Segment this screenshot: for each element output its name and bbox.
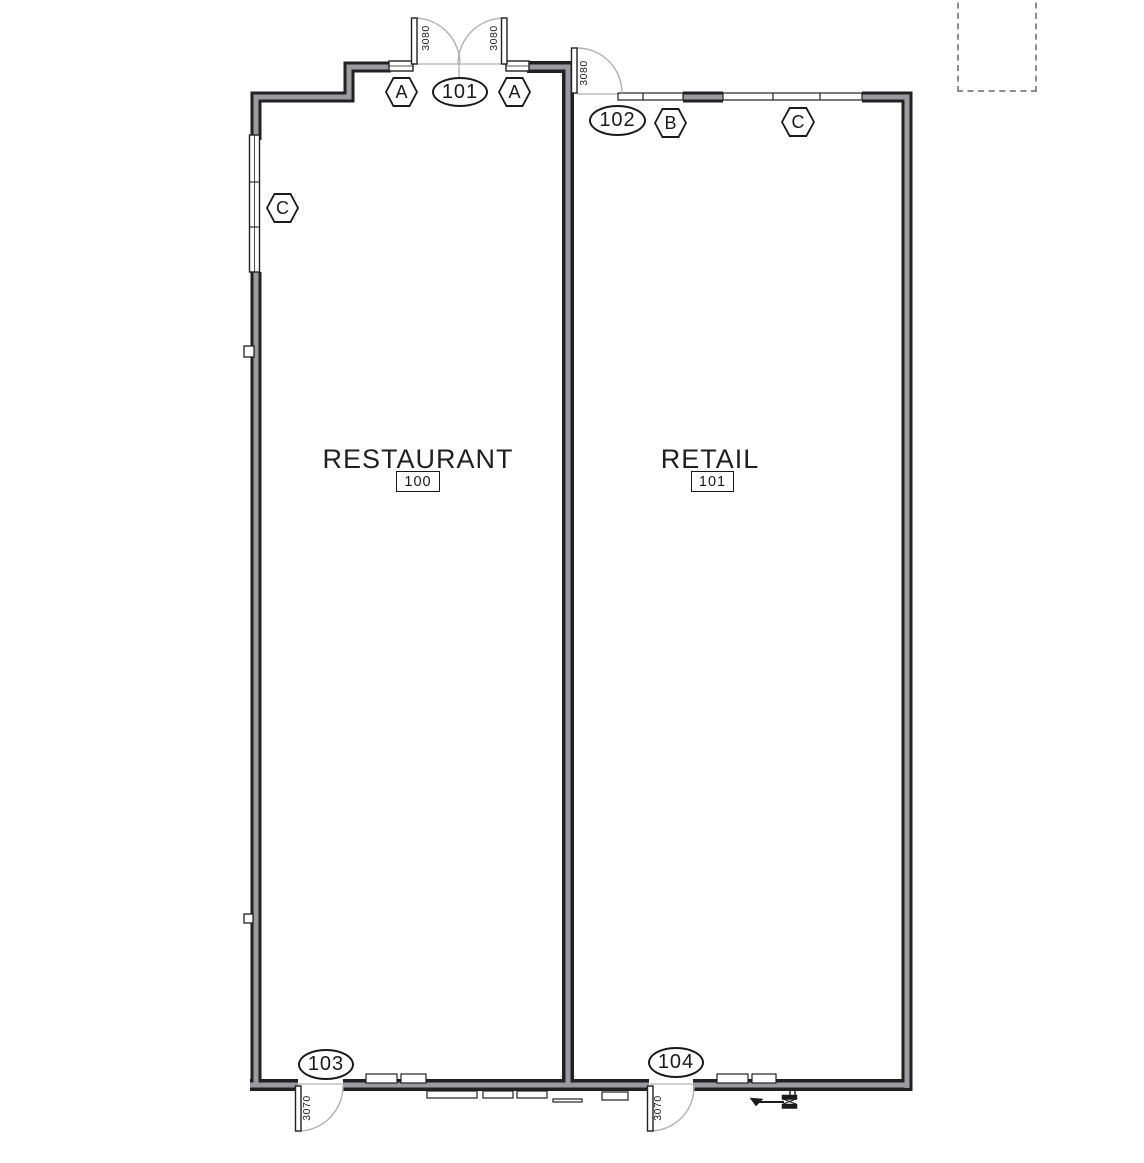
window-type-tag-a-right: A <box>498 77 531 107</box>
window-type-tag-a-left: A <box>385 77 418 107</box>
wall-demising <box>527 67 568 1085</box>
door-tag-101: 101 <box>432 77 488 107</box>
dimension-label-entry-right: 3080 <box>488 16 500 60</box>
hexagon-label: B <box>654 108 687 138</box>
wall-right-and-top-corner <box>862 97 907 1091</box>
door-tag-103: 103 <box>298 1049 354 1080</box>
wall-edges <box>250 67 907 1091</box>
dimension-label-door-102: 3080 <box>578 51 590 95</box>
floor-plan-canvas: RESTAURANT 100 RETAIL 101 101 102 103 10… <box>0 0 1144 1163</box>
hexagon-label: C <box>266 193 299 223</box>
window-type-tag-c-retail: C <box>781 107 815 137</box>
door-leaf-102 <box>572 48 578 93</box>
window-type-tag-c-left: C <box>266 193 299 223</box>
hexagon-label: C <box>781 107 815 137</box>
hexagon-label: A <box>498 77 531 107</box>
door-tag-102: 102 <box>589 105 646 136</box>
door-leaf-entry-right <box>502 18 508 64</box>
door-swing-arcs <box>298 18 694 1131</box>
dimension-label-entry-left: 3080 <box>420 16 432 60</box>
dashed-reference-box <box>957 0 1037 92</box>
wall-left-upper-and-top-jog <box>256 67 391 140</box>
dimension-label-door-103: 3070 <box>301 1086 313 1130</box>
window-retail-front-glazing <box>618 93 862 100</box>
door-leaf-entry-left <box>412 18 418 64</box>
dimension-label-door-104: 3070 <box>652 1086 664 1130</box>
room-number-box-retail: 101 <box>691 471 734 492</box>
room-number-box-restaurant: 100 <box>396 471 440 492</box>
window-type-tag-b: B <box>654 108 687 138</box>
window-left-storefront <box>250 135 260 272</box>
floor-plan-linework <box>0 0 1144 1163</box>
gas-valve-symbol <box>750 1091 797 1109</box>
wall-cores <box>250 67 907 1088</box>
door-leaves <box>296 18 654 1131</box>
hexagon-label: A <box>385 77 418 107</box>
door-threshold-lines <box>298 64 694 1084</box>
door-tag-104: 104 <box>648 1047 704 1078</box>
